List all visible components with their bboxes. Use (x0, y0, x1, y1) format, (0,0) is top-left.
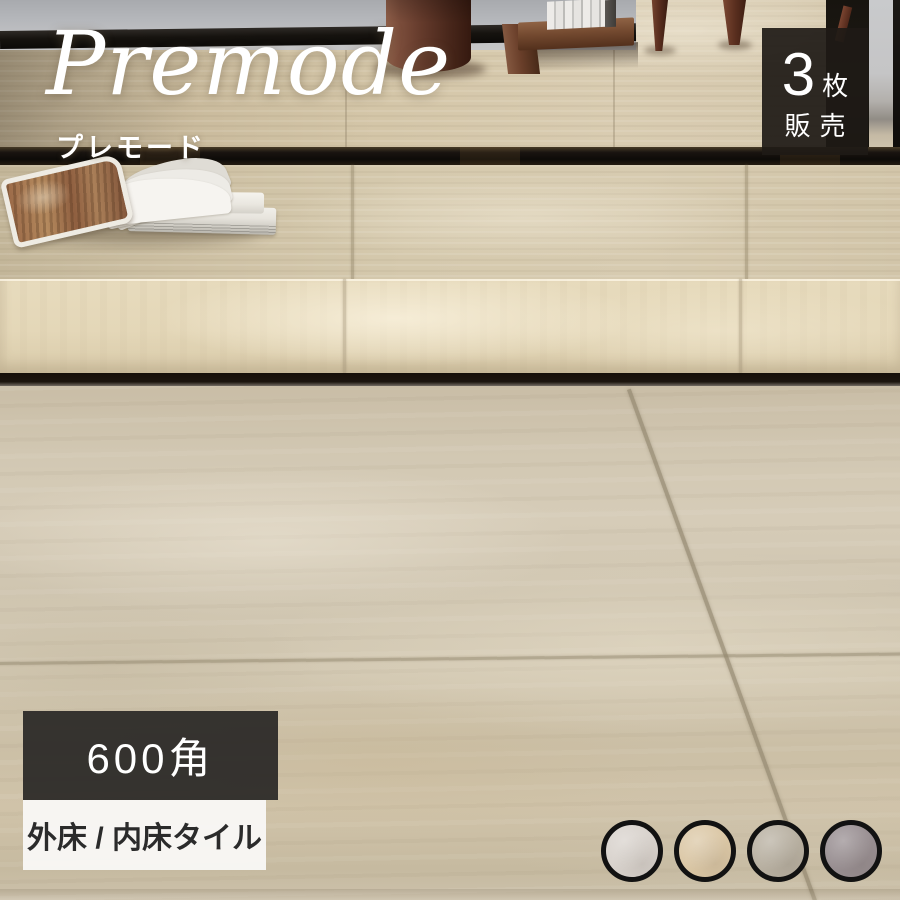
tile-type-text: 外床 / 内床タイル (27, 813, 262, 857)
swatch-white (601, 820, 663, 882)
brand-logo: Premode (46, 20, 451, 108)
grout-line (739, 279, 742, 373)
grout-line (745, 165, 748, 279)
swatch-greige (747, 820, 809, 882)
corner-shadow (893, 0, 900, 158)
grout-line (343, 279, 346, 373)
step-riser-tiles (0, 279, 900, 373)
swatch-gray (820, 820, 882, 882)
dark-book-spine (605, 0, 616, 27)
sale-unit: 枚 (822, 73, 848, 99)
tile-product-image: Premode プレモード 3 枚 販売 600角 外床 / 内床タイル (0, 0, 900, 900)
tile-type-badge: 外床 / 内床タイル (23, 800, 266, 870)
bottom-edge-shading (0, 889, 900, 900)
brand-name-japanese: プレモード (56, 126, 206, 165)
magazine-stack (2, 150, 297, 260)
tile-size-text: 600角 (86, 725, 214, 786)
sale-quantity-badge: 3 枚 販売 (762, 28, 868, 155)
sale-count-row: 3 枚 (782, 45, 848, 105)
grout-line (351, 165, 354, 279)
color-swatches (601, 820, 891, 884)
swatch-beige (674, 820, 736, 882)
sale-label: 販売 (784, 113, 854, 139)
wall-pillar (869, 0, 894, 153)
tile-size-badge: 600角 (23, 711, 278, 800)
sale-count: 3 (782, 45, 815, 105)
